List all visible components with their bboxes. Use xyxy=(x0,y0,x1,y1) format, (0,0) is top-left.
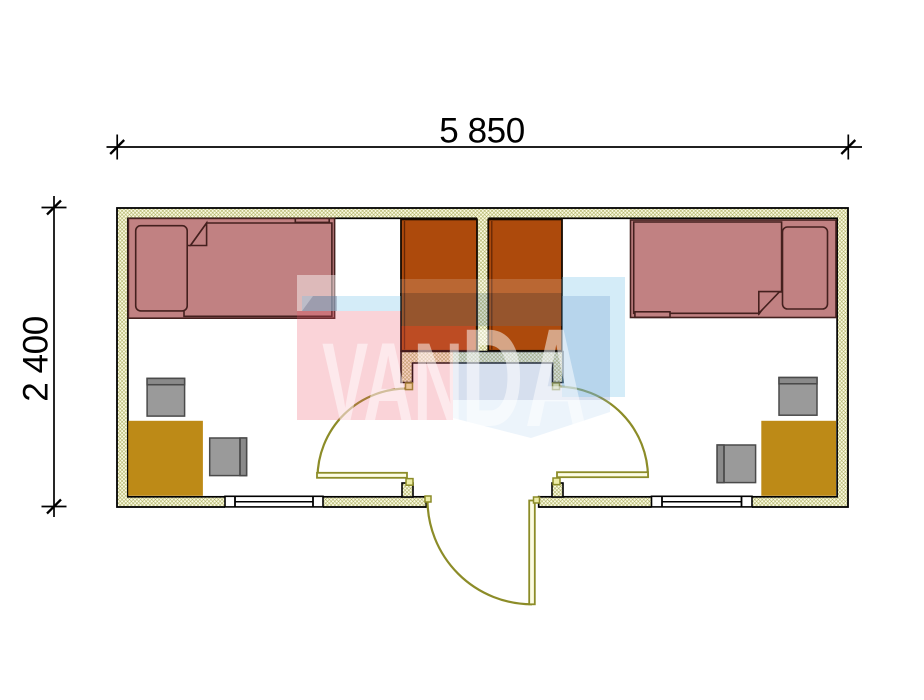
svg-text:5 850: 5 850 xyxy=(439,112,525,151)
svg-text:2 400: 2 400 xyxy=(17,316,56,402)
svg-text:DA: DA xyxy=(461,300,589,456)
svg-text:VAN: VAN xyxy=(322,320,463,445)
